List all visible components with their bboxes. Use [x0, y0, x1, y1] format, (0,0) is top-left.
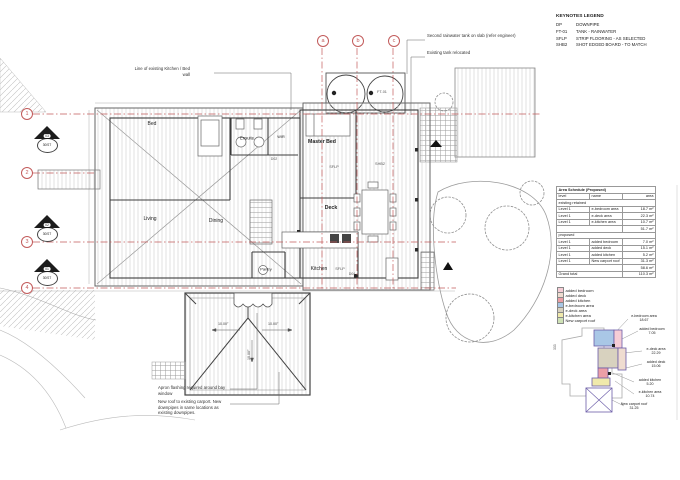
keynote-row: DPDOWNPIPE	[556, 22, 647, 29]
keynotes-legend: KEYNOTES LEGEND DPDOWNPIPE FT-01TANK - R…	[556, 13, 647, 49]
slope-label-left: 10.00°	[218, 322, 228, 326]
tag-shb2: SHB2	[375, 162, 385, 166]
room-label-wir: WIR	[277, 135, 284, 139]
keynote-row: FT-01TANK - RAINWATER	[556, 29, 647, 36]
slope-label-right: 10.00°	[268, 322, 278, 326]
grid-bubble-c: c	[388, 35, 400, 47]
legend-swatch	[557, 317, 564, 324]
keyplan-label-added-kitchen: added kitchen5.20	[639, 378, 661, 387]
slope-label-ridge: 10.00°	[247, 350, 251, 360]
room-label-deck: Deck	[325, 205, 337, 211]
room-label-bed: Bed	[148, 121, 157, 127]
section-marker-triangle: 02	[34, 215, 60, 228]
room-label-master-bed: Master Bed	[308, 139, 336, 145]
site-hatch-topleft	[0, 58, 46, 112]
drawing-sheet: Bed Ensuite WIR Master Bed Living Dining…	[0, 0, 680, 480]
key-plan-added-deck	[618, 348, 626, 370]
key-plan-e-deck	[598, 348, 618, 368]
note-apron-flashing: Apron flashing required around bay windo…	[158, 385, 228, 396]
grid-bubble-a: a	[317, 35, 329, 47]
key-plan-added-bedroom	[614, 330, 622, 348]
keynotes-title: KEYNOTES LEGEND	[556, 13, 647, 20]
tag-sflp-1: SFLP	[329, 165, 339, 169]
keynote-row: SFLPSTRIP FLOORING - AS SELECTED	[556, 36, 647, 43]
section-marker-ref: 30/ST	[37, 138, 58, 153]
grid-bubble-2: 2	[21, 167, 33, 179]
pond-outline	[433, 181, 551, 342]
existing-shed-roof	[455, 68, 535, 157]
area-schedule-table: Area Schedule (Proposed) level name area…	[556, 186, 656, 278]
room-label-ensuite: Ensuite	[240, 136, 254, 141]
section-marker-ref: 30/ST	[37, 227, 58, 242]
table-grand-total-row: Grand total110.3 m²	[557, 271, 656, 278]
driveway-hatch	[0, 290, 95, 340]
note-second-tank: Second rainwater tank on slab (refer eng…	[427, 33, 519, 39]
room-label-living: Living	[143, 216, 156, 222]
keyplan-dimension: 333	[553, 344, 557, 350]
key-plan-e-bedroom	[594, 330, 614, 346]
keyplan-label-e-kitchen: e-kitchen area10.74	[639, 390, 662, 399]
tag-ft01: FT-01	[377, 90, 387, 94]
note-existing-tank: Existing tank relocated	[427, 50, 519, 56]
door-tag-d04: D04	[349, 272, 355, 276]
legend-item-new-carport: New carport roof	[557, 317, 595, 324]
note-existing-wall: Line of existing Kitchen / Bed wall	[128, 66, 190, 77]
section-marker-01: 01 30/ST	[30, 259, 64, 286]
section-marker-triangle: 03	[34, 126, 60, 139]
keyplan-label-e-bedroom: e-bedroom area18.67	[631, 314, 657, 323]
section-marker-02: 02 30/ST	[30, 215, 64, 242]
keyplan-label-added-deck: added deck15.06	[647, 360, 666, 369]
door-tag-d02: D02	[271, 157, 277, 161]
keyplan-label-e-deck: e-deck area22.29	[647, 347, 666, 356]
room-label-pantry: Pantry	[260, 267, 272, 272]
grid-bubble-1: 1	[21, 108, 33, 120]
section-marker-ref: 30/ST	[37, 271, 58, 286]
room-label-dining: Dining	[209, 218, 223, 224]
section-marker-03: 03 30/ST	[30, 126, 64, 153]
keyplan-label-added-bedroom: added bedroom7.05	[639, 327, 664, 336]
deck-stair	[421, 252, 434, 290]
keyplan-label-new-carport: New carport roof31.25	[621, 402, 648, 411]
key-plan-e-kitchen	[592, 378, 610, 386]
note-carport-roof: New roof to existing carport. New downpi…	[158, 399, 230, 416]
keynote-row: SHB2SHOT EDGED BOARD - TO MATCH	[556, 42, 647, 49]
path-hatch	[152, 362, 185, 379]
internal-stair	[250, 200, 272, 244]
tag-sflp-2: SFLP	[335, 267, 345, 271]
grid-bubble-b: b	[352, 35, 364, 47]
section-marker-triangle: 01	[34, 259, 60, 272]
room-label-kitchen: Kitchen	[311, 266, 328, 272]
